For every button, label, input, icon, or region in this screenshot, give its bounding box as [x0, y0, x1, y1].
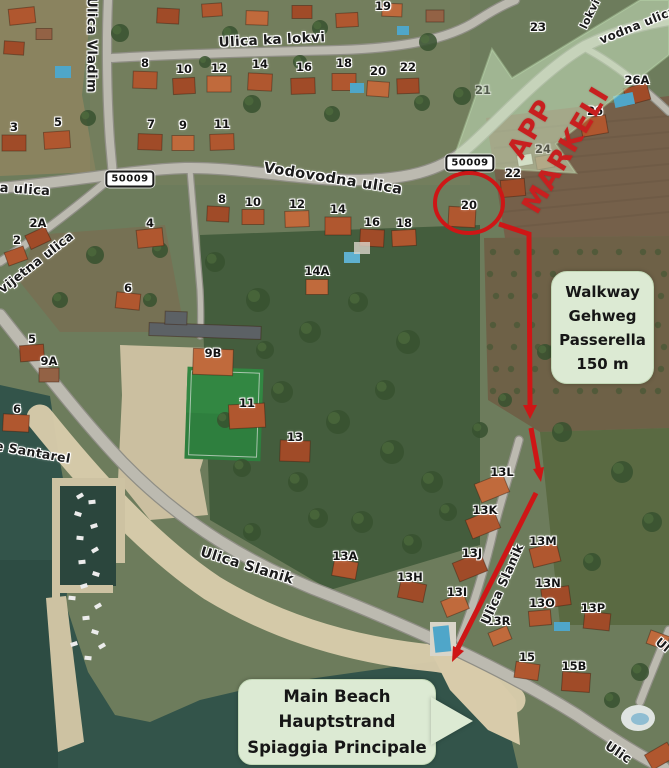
route-arrowhead	[533, 467, 544, 482]
route-arrowhead	[523, 405, 537, 419]
route-arrowhead	[452, 646, 464, 662]
route-annotation-layer	[0, 0, 669, 768]
route-arrow-segment-2	[531, 428, 539, 472]
route-arrow-segment-3	[457, 493, 536, 650]
satellite-map: 50009 50009 19810121416182022232126A2624…	[0, 0, 669, 768]
route-arrow-segment-1	[499, 224, 530, 407]
highlight-circle-house-20	[435, 173, 503, 233]
